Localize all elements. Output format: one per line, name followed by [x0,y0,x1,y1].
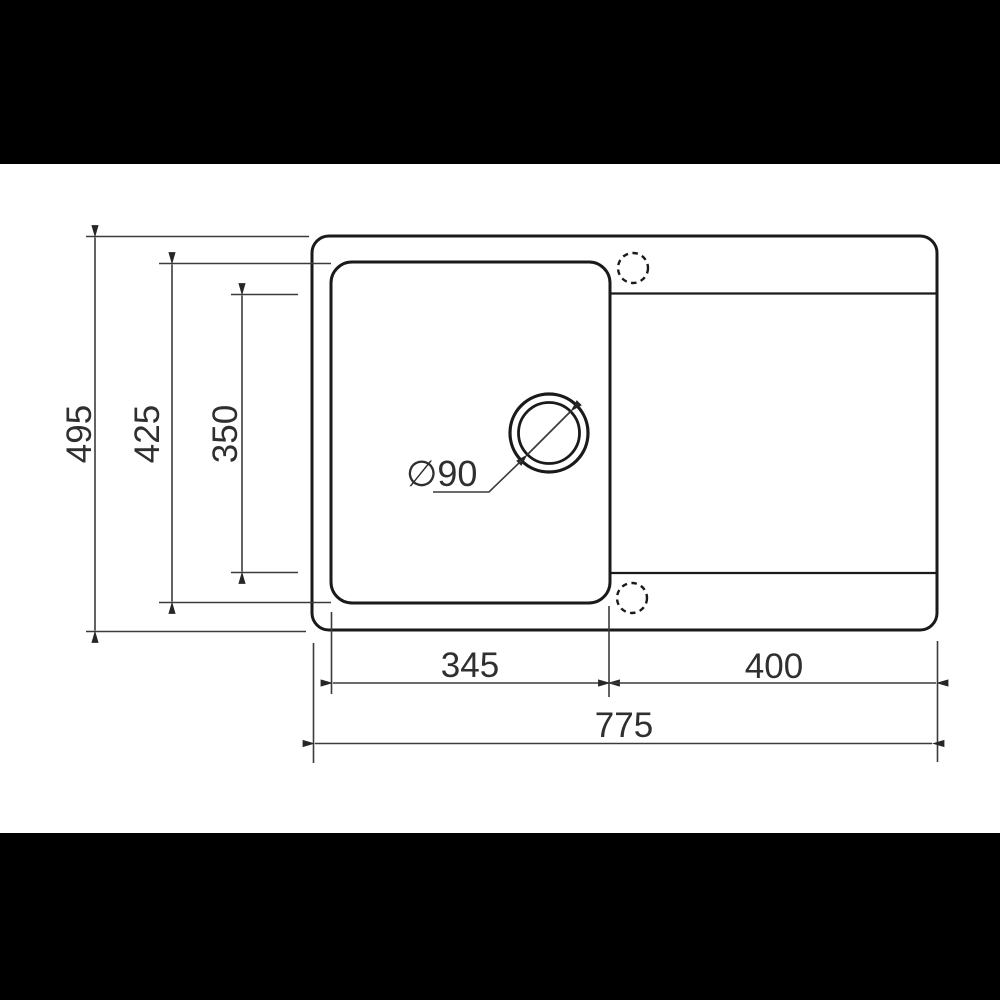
drain-diameter-label: ∅90 [406,453,477,494]
tap-hole-dashed-circle-bottom [617,583,647,613]
screenshot-stage: ∅90 495 425 350 [0,0,1000,1000]
drain-diameter-arrow [528,412,571,455]
dim-overall-depth-label: 495 [60,405,99,463]
dim-bowl-width-label: 345 [441,646,499,685]
sink-outer-outline [312,236,937,630]
dim-bowl-inner-depth-label: 350 [206,405,245,463]
sink-technical-drawing: ∅90 495 425 350 [0,0,1000,1000]
tap-hole-dashed-circle-top [618,253,648,283]
dim-drainer-width-label: 400 [745,647,803,686]
dim-bowl-outer-depth-label: 425 [128,405,167,463]
dim-overall-width-label: 775 [595,706,653,745]
bowl-outline [331,262,610,603]
